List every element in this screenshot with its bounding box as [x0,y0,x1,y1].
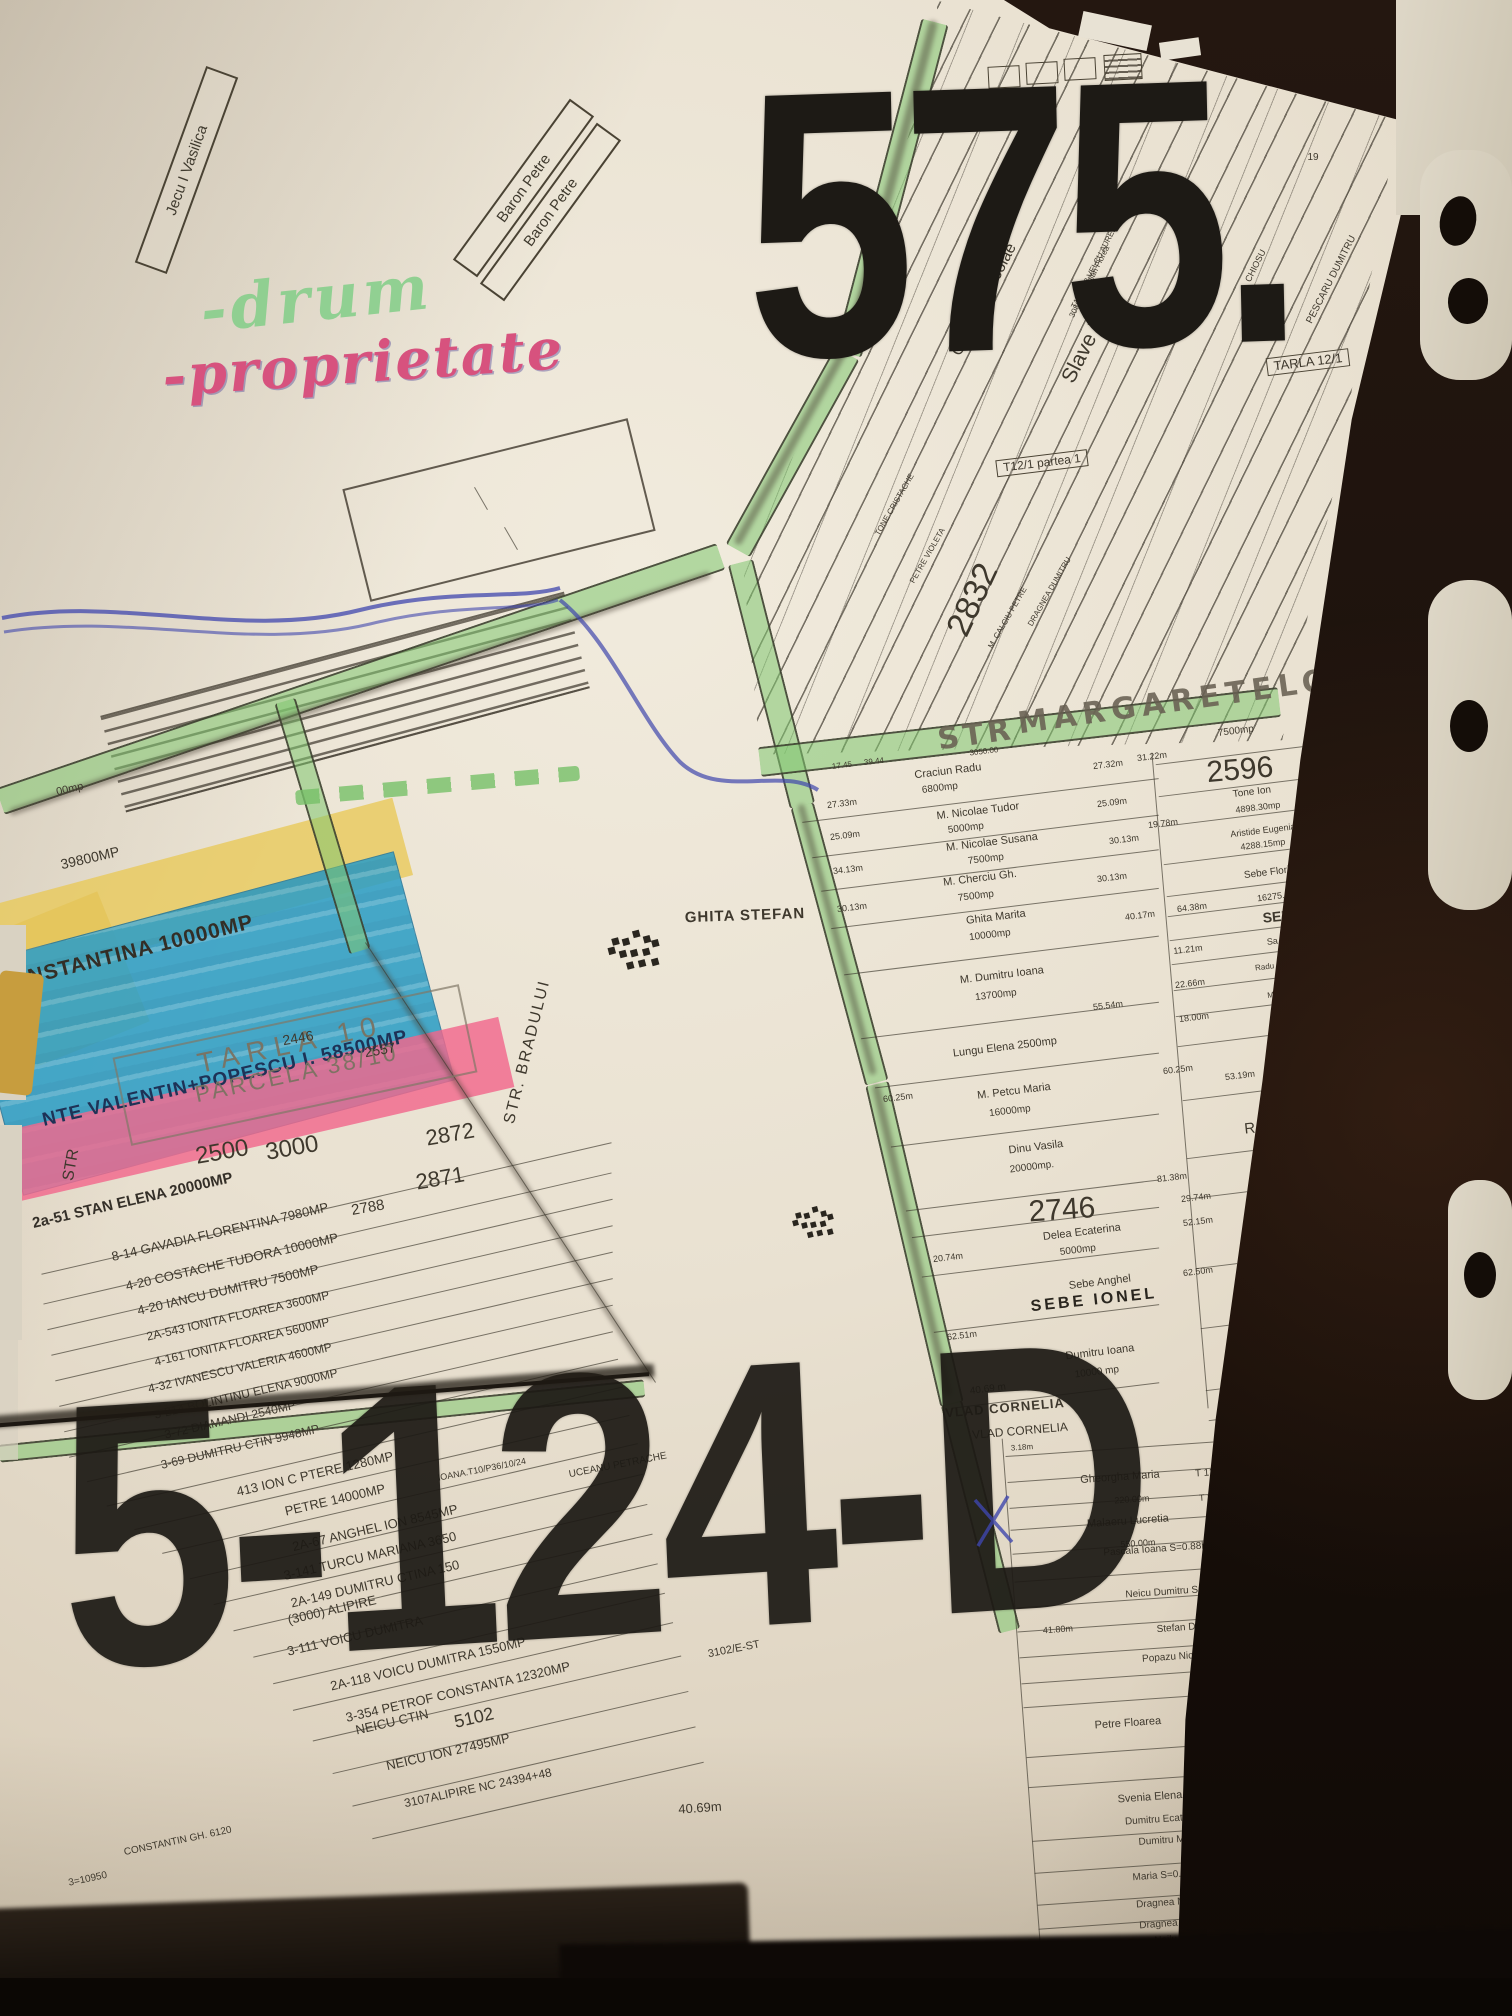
parcel-divider-line [1191,1174,1390,1199]
row-value: T 13 A 12/3/12 [1308,1709,1373,1724]
parcel-divider-line [1028,1757,1459,1788]
area: Sa 2398.51mp [1266,931,1325,948]
area: 6800mp [921,782,958,797]
owner-stefan-dumitra: Stefan Dumitra [1156,1620,1223,1635]
owner-dragnea-maria: Dragnea Maria 550.00m [1136,1893,1244,1911]
parcel-divider-line [1032,1811,1459,1842]
owner-dumitru-ioana: M. Dumitru Ioana [959,965,1044,987]
owner-radu-anghelina: Radu Anghelina 8197.50m [1255,953,1350,973]
measure: 19.78m [1148,817,1179,830]
toner-smudge [797,803,877,1075]
measure: 25.09m [830,829,861,842]
row-value: T 13 A 12/3/11 [1313,1805,1377,1820]
measure: 30.13m [1097,871,1128,884]
parcel-divider-line [1201,1304,1400,1329]
parcel-divider-line [1196,1244,1395,1269]
row-value: T 13 A 12/3/10 25.20m [1307,1864,1398,1880]
owner-dumitrea: Dumitrea [1312,1153,1354,1168]
measure: 60.25m [1163,1063,1194,1076]
area-39800: 39800MP [59,844,121,872]
owner-petre-floarea: Petre Floarea [1094,1716,1161,1732]
owner-ghita-stefan: GHITA STEFAN [685,906,806,926]
measure: 52.15m [1183,1215,1214,1228]
parcel-divider-line [1178,1022,1377,1047]
row-value: A 12/3/13 20.00m [1282,1647,1353,1661]
right-sheet-strip [1420,150,1512,380]
owner-dumitru-ii: Dumitru Ii [1298,1042,1337,1056]
measure: 30.13m [837,901,868,914]
measure: 62.50m [1183,1265,1214,1278]
parcel-2871: 2871 [414,1162,466,1193]
punch-hole [1450,700,1488,752]
row-value: S=1.50ha [1216,1713,1260,1726]
measure: 31.22m [1137,750,1168,763]
area: 7500mp [957,890,994,905]
list-constantin: CONSTANTIN GH. 6120 [123,1825,233,1858]
owner-petre-petra: 1160 PETRE PETRA [1233,1286,1346,1310]
toner-smudge [9,571,712,816]
list-10950: 3=10950 [68,1871,109,1889]
parcel-2596: 2596 [1205,751,1274,788]
row-value: 550.00m [1194,1672,1230,1684]
owner-craciun-radu: Craciun Radu [914,762,982,782]
parcel-19: 19 [1307,153,1318,164]
parcel-outline [342,418,655,602]
row-value: /19 20.00m [1249,1492,1295,1505]
parcel-2872: 2872 [424,1118,476,1149]
owner-tone-ion: Tone Ion [1232,785,1271,800]
owner-aristide-eugenia: Aristide Eugenia [1230,822,1296,839]
torn-paper-bit [1159,37,1201,60]
parcel-divider-line [1026,1727,1459,1758]
row-value: T 18 [1199,1493,1217,1504]
owner-sebe-maria: SEBE MARIA 2 [1262,901,1362,926]
measure: 36.04m [1441,1865,1468,1875]
owner-dumitru-ecaterina: Dumitru Ecaterina [1125,1812,1206,1828]
owner-cherciu: M. Cherciu Gh. [943,869,1018,889]
parcel-divider-line [1183,1076,1382,1101]
row-value: 550.00m [1240,1836,1276,1848]
area: 20000mp. [1009,1160,1054,1176]
row-value: A 12/3/16 20.00m [1274,1571,1345,1585]
row-value: /30 20.00m [1222,1444,1268,1457]
parcel-divider-line [1037,1875,1460,1906]
owner-box-jecu-vasilica: Jecu I Vasilica [135,66,238,274]
owner-box-label: Jecu I Vasilica [162,123,210,218]
village-symbol-cluster [611,937,620,946]
green-dashed-line [295,766,580,806]
row-value: 550.00m [1197,1754,1233,1766]
left-sheet-edge [0,1340,18,1460]
area: 13700mp [975,988,1018,1004]
area: 10000mp [969,928,1012,944]
owner-dinu-vasila: Dinu Vasila [1008,1139,1064,1157]
measure: 43.57m [1284,1390,1312,1402]
measure: 25.40m [1315,1440,1346,1452]
measure: 17.45 [832,761,853,772]
measure: 11.21m [1173,944,1203,957]
measure: 28.40m [1397,1436,1428,1448]
photo-background: NSTANTINA 10000MP NTE VALENTIN+POPESCU I… [0,0,1512,2016]
measure: 29.74m [1181,1191,1212,1204]
owner-stoica-mihai: M. Stoica Mihai 4283.67 [1267,982,1353,1001]
measure: 25.09m [1097,796,1128,809]
area: 14334.79mp [1294,1056,1345,1071]
area: 16000mp [989,1104,1032,1120]
parcel-divider-line [1034,1843,1459,1874]
punch-hole [1464,1252,1496,1298]
parcel-divider-line [875,1053,1159,1089]
row-value: A 12/3/14 11.80m [1280,1621,1350,1635]
parcel-divider-line [1151,753,1208,1409]
owner-petcu-maria: M. Petcu Maria [977,1082,1052,1102]
parcel-3198: 3198 [1289,1005,1326,1025]
owner-dumitru-maria: Dumitru Maria [1138,1834,1201,1849]
measure: 20.74m [933,1251,964,1264]
row-value: A 12/3/17 20.00m [1269,1541,1340,1555]
measure: 18.00m [1179,1011,1210,1024]
measure: 27.32m [1093,758,1124,771]
row-value: A 12/3/15 14.00m [1276,1597,1347,1611]
measure: 39.44 [864,757,885,768]
owner-maria: Maria S=0.83ha [1132,1868,1203,1883]
measure: 22.89m [1423,1706,1454,1718]
measure: 34.13m [833,863,864,876]
row-value: A 12/3/18 18.20m [1264,1513,1335,1527]
measure: 81.38m [1157,1171,1188,1184]
parcel-divider-line [1209,1396,1408,1421]
owner-svenia-elena: Svenia Elena [1117,1790,1182,1806]
owner-sebe-florica: Sebe Florica [1243,864,1300,881]
owner-petcu-ilie: Petcu Ilie [1305,1091,1347,1106]
measure: 40.69m [678,1800,722,1817]
table-edge-bottom [0,1978,1512,2016]
measure: 27.33m [827,797,858,810]
area: 7500mp [967,853,1004,868]
row-value: S=1.10ha [1233,1787,1277,1800]
parcel-divider-line [1038,1899,1459,1929]
parcel-divider-line [1187,1134,1386,1159]
parcel-2746: 2746 [1028,1192,1097,1228]
area: 5000mp [947,822,984,837]
cadastral-map-sheet: NSTANTINA 10000MP NTE VALENTIN+POPESCU I… [0,0,1512,2016]
row-value: T 13 A 12/3/9 14.00m [1335,1910,1421,1925]
parcel-divider-line [1238,1442,1263,1950]
left-sheet-edge [0,1125,22,1340]
measure: 55.54m [1093,999,1124,1012]
owner-dragnea-gheorghe: Dragnea Gheorghe S=0.55ha [1139,1912,1271,1932]
street-bradului: STR. BRADULUI [502,978,554,1125]
parcel-divider-line [1206,1366,1405,1391]
plan-number-575: 575. [742,57,1295,379]
measure: 40.17m [1125,909,1156,922]
row-value: T 13 [1195,1468,1216,1480]
owner-raia-constanti: RAIA CONSTANTI [1244,1109,1369,1138]
parcel-1362-7: 1362/7 [1248,1184,1323,1215]
list-neicu-ion: NEICU ION 27495MP [385,1731,511,1773]
owner-lungu-elena: Lungu Elena 2500mp [952,1036,1057,1060]
measure: 53.19m [1225,1069,1256,1082]
measure: 30.13m [1109,833,1140,846]
measure: 22.66m [1175,977,1206,990]
owner-popazu-nicolae: Popazu Nicolae S=0.75ha [1142,1647,1258,1666]
measure: 3050.00 [969,746,999,758]
measure: 60.25m [883,1091,914,1104]
parcel-2788: 2788 [350,1197,386,1218]
village-symbol-cluster [795,1212,802,1219]
